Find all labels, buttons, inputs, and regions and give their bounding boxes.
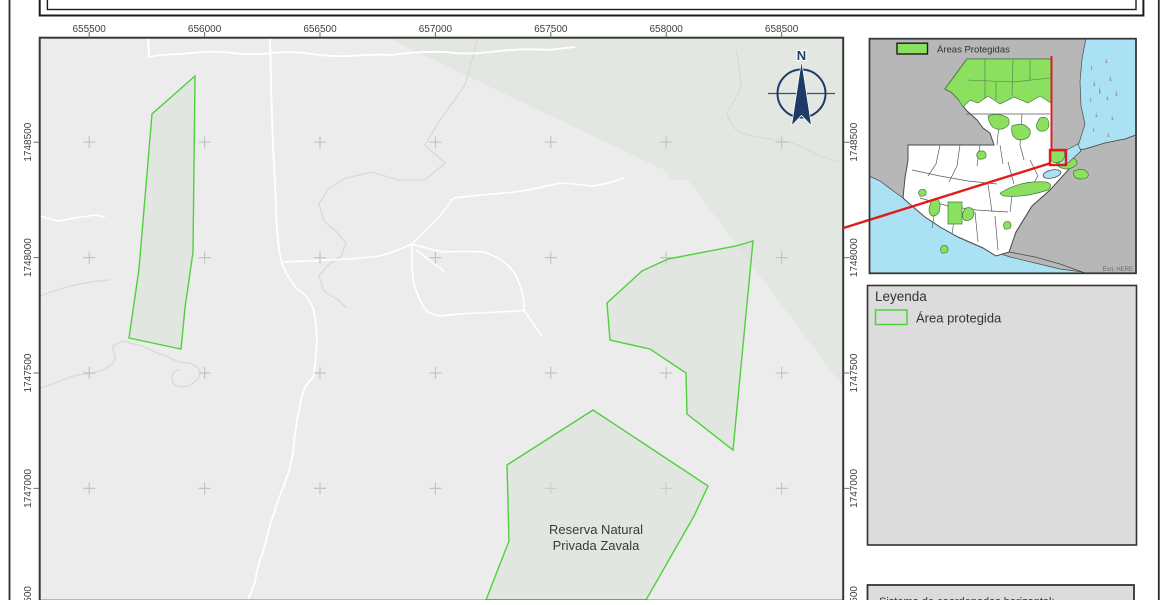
svg-text:1746500: 1746500 — [23, 586, 34, 600]
svg-text:1748500: 1748500 — [849, 122, 860, 161]
svg-text:1748000: 1748000 — [849, 238, 860, 277]
svg-text:Áreas Protegidas: Áreas Protegidas — [937, 45, 1010, 56]
svg-text:Área protegida: Área protegida — [916, 311, 1002, 326]
svg-text:1747500: 1747500 — [23, 353, 34, 392]
svg-text:656000: 656000 — [188, 24, 222, 35]
svg-text:655500: 655500 — [73, 24, 107, 35]
svg-text:658500: 658500 — [765, 24, 799, 35]
svg-text:1748000: 1748000 — [23, 238, 34, 277]
svg-text:Esri, HERE: Esri, HERE — [1103, 267, 1133, 273]
svg-text:Sistema de coordenadas horizon: Sistema de coordenadas horizontal: — [879, 596, 1055, 600]
svg-text:658000: 658000 — [650, 24, 684, 35]
svg-text:656500: 656500 — [303, 24, 337, 35]
svg-text:1747000: 1747000 — [23, 468, 34, 507]
svg-text:Reserva Natural: Reserva Natural — [549, 522, 643, 537]
svg-text:1746500: 1746500 — [849, 586, 860, 600]
svg-text:1747000: 1747000 — [849, 468, 860, 507]
svg-text:Leyenda: Leyenda — [875, 289, 927, 304]
svg-text:657500: 657500 — [534, 24, 568, 35]
svg-text:Privada Zavala: Privada Zavala — [553, 538, 640, 553]
svg-text:1748500: 1748500 — [23, 122, 34, 161]
svg-text:657000: 657000 — [419, 24, 453, 35]
svg-text:N: N — [797, 48, 806, 63]
svg-text:1747500: 1747500 — [849, 353, 860, 392]
